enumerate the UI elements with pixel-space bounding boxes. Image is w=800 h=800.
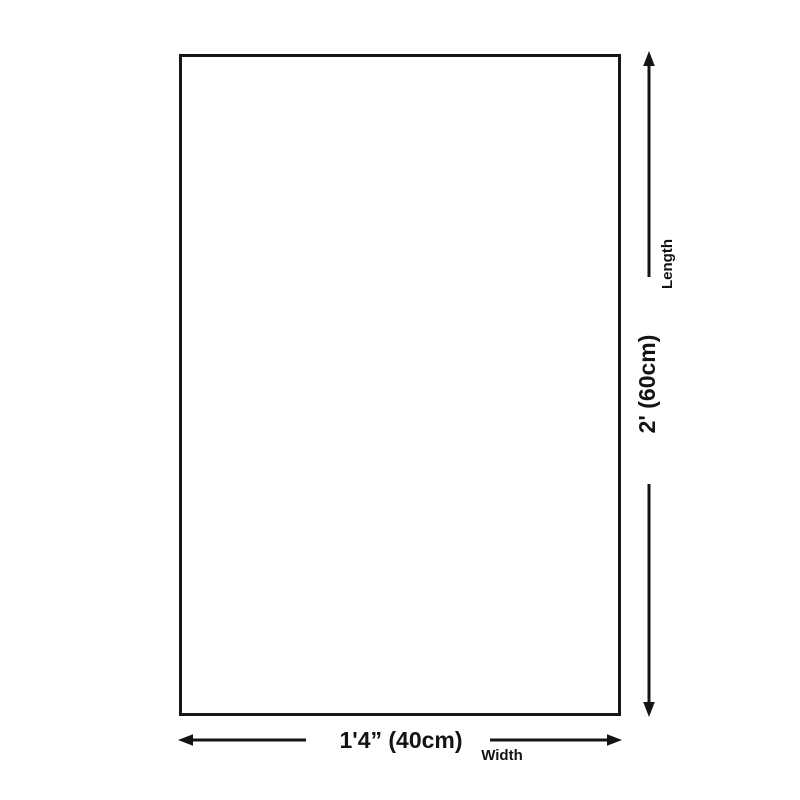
width-axis-label: Width: [457, 745, 547, 765]
product-outline-rect: [179, 54, 621, 716]
arrow-left-icon: [178, 734, 193, 746]
dimension-diagram: 2' (60cm) Length 1'4” (40cm) Width: [0, 0, 800, 800]
arrow-right-icon: [607, 734, 622, 746]
arrow-up-icon: [643, 51, 655, 66]
length-axis-label: Length: [657, 219, 677, 309]
arrow-down-icon: [643, 702, 655, 717]
